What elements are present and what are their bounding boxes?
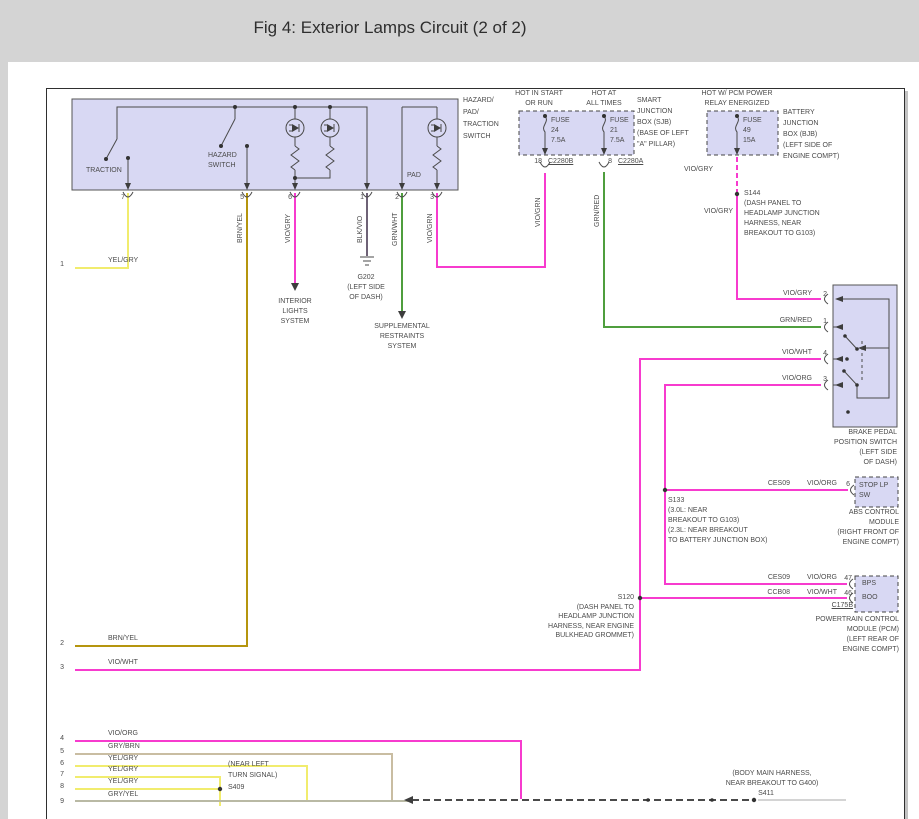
figure-title: Fig 4: Exterior Lamps Circuit (2 of 2): [253, 18, 526, 38]
screenshot-canvas: Fig 4: Exterior Lamps Circuit (2 of 2): [0, 0, 919, 819]
title-bar: Fig 4: Exterior Lamps Circuit (2 of 2): [0, 0, 919, 62]
diagram-border: [46, 88, 905, 819]
